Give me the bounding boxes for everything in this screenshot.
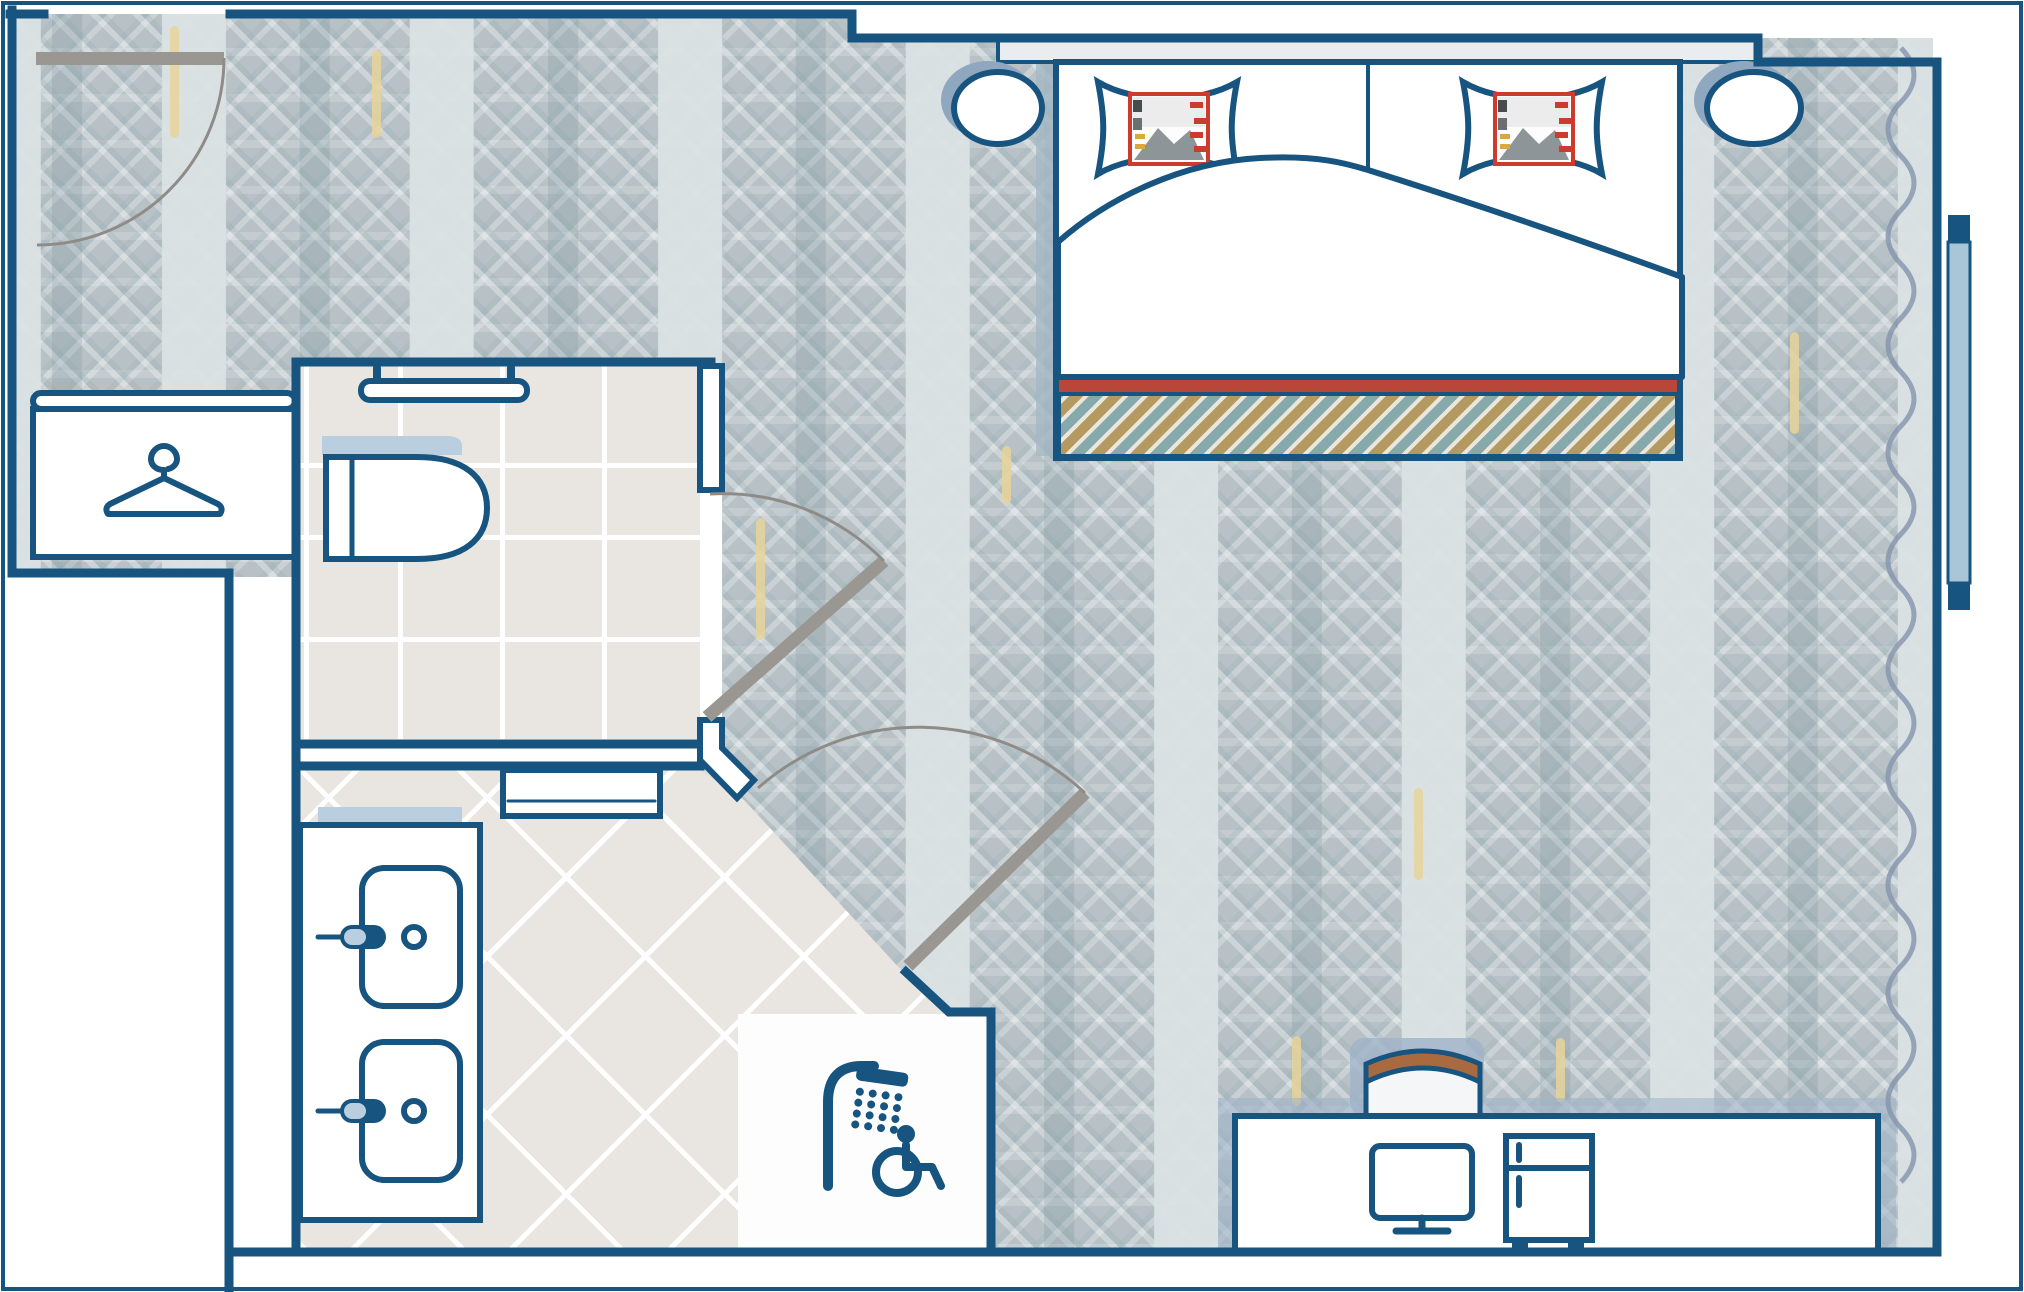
pillow <box>1098 82 1237 174</box>
floor-plan <box>0 0 2024 1292</box>
door-jamb <box>700 720 754 798</box>
monitor-icon <box>1372 1146 1472 1231</box>
wardrobe <box>33 393 295 557</box>
shower-icon <box>828 1066 909 1186</box>
door-swing-icon <box>710 494 884 561</box>
bed-blanket <box>1059 394 1677 456</box>
door-leaf <box>707 561 884 717</box>
desk-area <box>1218 1038 1896 1252</box>
window-icon <box>1948 215 1970 610</box>
nightstand <box>1694 61 1801 144</box>
curtain-icon <box>1888 48 1914 1182</box>
door-swing-icon <box>37 58 224 245</box>
toilet-room-door <box>707 494 884 717</box>
nightstand <box>941 61 1042 144</box>
door-leaf <box>908 793 1085 966</box>
plan-linework <box>0 0 2024 1292</box>
minibar-icon <box>1506 1136 1592 1249</box>
door-leaf <box>36 52 224 65</box>
bathroom-door <box>758 727 1085 966</box>
entry-door <box>36 52 224 245</box>
desk-chair <box>1350 1038 1484 1122</box>
toilet-cistern <box>322 436 462 455</box>
bed-red-band <box>1059 378 1677 394</box>
grab-bar-icon <box>361 368 527 400</box>
double-bed <box>998 36 1758 458</box>
toilet <box>322 436 487 559</box>
wardrobe-body <box>33 409 295 557</box>
bathroom-shelf <box>503 770 660 816</box>
door-jamb <box>700 366 722 490</box>
wheelchair-accessible-icon <box>876 1125 941 1193</box>
pillow <box>1463 82 1602 174</box>
vanity <box>300 807 480 1220</box>
door-swing-icon <box>758 727 1085 793</box>
